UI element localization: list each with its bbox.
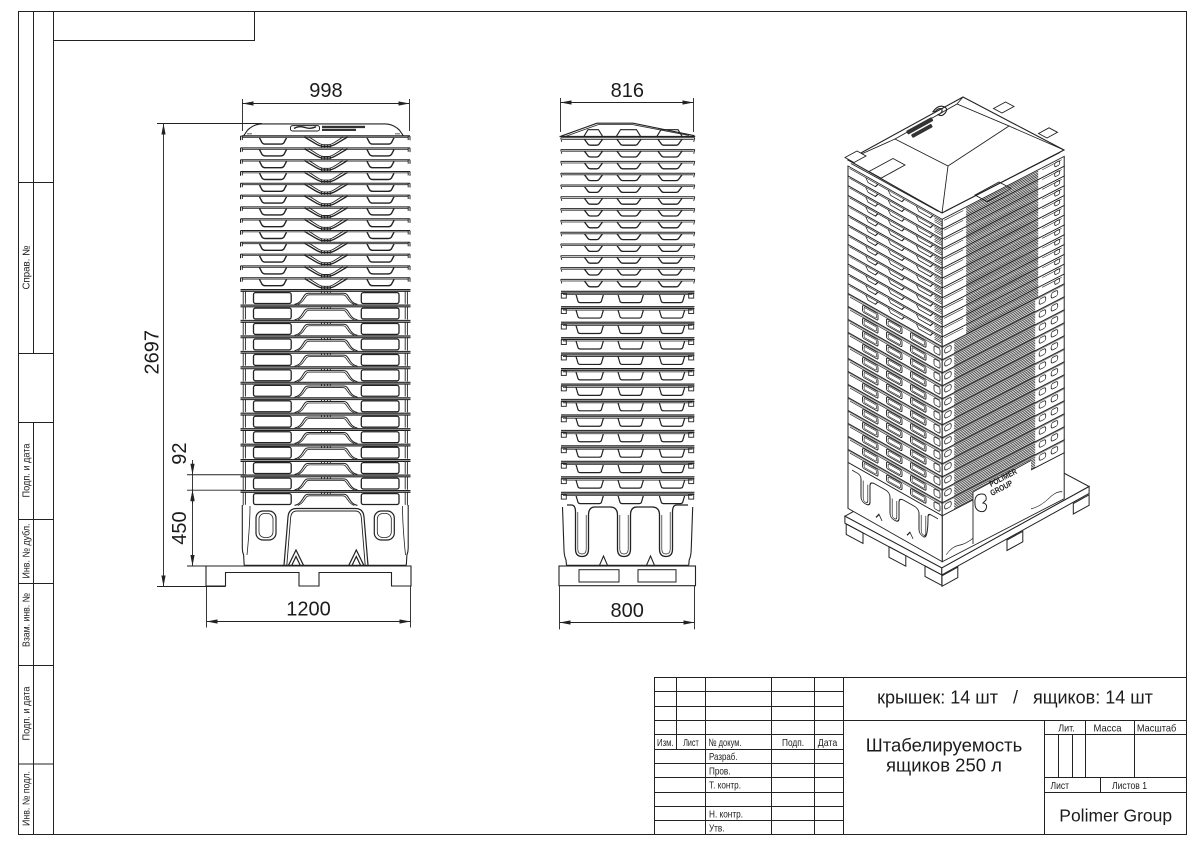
svg-text:Справ. №: Справ. № — [22, 245, 33, 289]
svg-text:Дата: Дата — [818, 737, 838, 749]
svg-text:Подп.: Подп. — [782, 737, 804, 749]
svg-text:816: 816 — [611, 80, 644, 102]
svg-text:Инв. № дубл.: Инв. № дубл. — [21, 524, 33, 579]
svg-text:Т. контр.: Т. контр. — [709, 780, 741, 792]
svg-text:Штабелируемость: Штабелируемость — [866, 735, 1022, 756]
svg-text:800: 800 — [611, 600, 644, 622]
svg-text:450: 450 — [169, 511, 191, 544]
svg-text:Пров.: Пров. — [709, 765, 731, 777]
svg-text:Разраб.: Разраб. — [709, 751, 738, 763]
svg-text:2697: 2697 — [142, 330, 164, 375]
svg-text:998: 998 — [309, 80, 342, 102]
svg-text:№ докум.: № докум. — [709, 737, 742, 749]
svg-text:1200: 1200 — [286, 599, 331, 621]
svg-text:Взам. инв. №: Взам. инв. № — [22, 593, 33, 647]
svg-text:Polimer Group: Polimer Group — [1059, 806, 1172, 826]
svg-text:Инв. № подл.: Инв. № подл. — [22, 771, 33, 826]
svg-text:ящиков 250 л: ящиков 250 л — [886, 755, 1002, 776]
svg-text:Н. контр.: Н. контр. — [709, 808, 743, 820]
svg-text:Масса: Масса — [1094, 723, 1122, 735]
svg-text:Подп. и дата: Подп. и дата — [22, 443, 33, 497]
svg-text:Лист: Лист — [683, 737, 699, 749]
svg-text:Лит.: Лит. — [1058, 723, 1075, 735]
svg-text:92: 92 — [169, 442, 191, 464]
svg-text:Изм.: Изм. — [657, 737, 674, 749]
svg-text:Лист: Лист — [1051, 780, 1070, 792]
svg-text:Листов 1: Листов 1 — [1112, 780, 1147, 792]
svg-text:крышек: 14 шт / ящиков: 14: крышек: 14 шт / ящиков: 14 шт — [877, 688, 1153, 708]
svg-text:Утв.: Утв. — [709, 823, 725, 835]
svg-text:Подп. и дата: Подп. и дата — [22, 686, 33, 740]
svg-text:Масштаб: Масштаб — [1137, 723, 1177, 735]
